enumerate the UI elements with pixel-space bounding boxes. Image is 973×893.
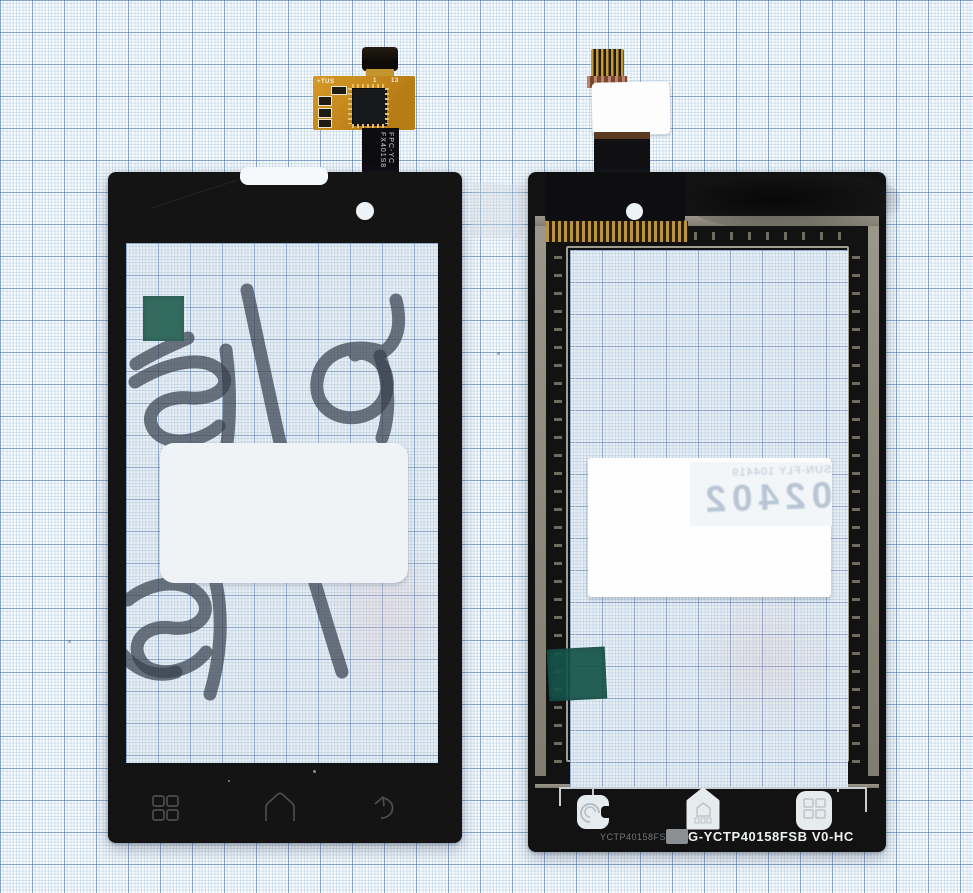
left-digitizer-front	[108, 172, 462, 843]
flex-connector-fingers	[591, 49, 624, 77]
flex-tab	[545, 172, 685, 224]
sensor-frame-left	[535, 216, 546, 776]
flex-ribbon: FPC-YC FX401S8	[362, 128, 399, 174]
paper-speck	[68, 640, 71, 643]
paper-speck	[497, 352, 500, 355]
bezel-scratch	[150, 180, 236, 209]
touch-controller-chip	[352, 88, 387, 126]
alignment-hole	[626, 203, 643, 220]
home-icon	[266, 793, 294, 821]
tape-ghost	[471, 183, 526, 240]
smd-component	[318, 96, 332, 106]
back-icon	[375, 797, 393, 818]
menu-icon	[153, 796, 178, 820]
flex-ribbon	[594, 132, 650, 174]
green-sticker	[143, 296, 184, 341]
pin13-label: 13	[391, 78, 399, 84]
board-connector	[362, 47, 398, 71]
flex-ribbon-text: FPC-YC FX401S8	[378, 132, 394, 168]
product-photo: +TUS 1 13 FPC-YC FX401S8	[0, 0, 973, 893]
smd-component	[318, 119, 332, 128]
right-digitizer-back: SUN-FLY 104419 02402	[528, 172, 886, 852]
silkscreen-mark: +TUS	[317, 79, 335, 85]
chip-pins-top	[352, 84, 385, 88]
part-number-bold: G-YCTP40158FSB V0-HC	[688, 829, 854, 844]
glass-reflection	[690, 580, 840, 740]
sensor-trace	[842, 250, 843, 787]
adhesive-smudge	[690, 174, 900, 229]
gray-blob	[666, 829, 688, 844]
stamp-big-text: 02402	[690, 478, 832, 519]
home-pad	[688, 789, 718, 828]
sticker-overlay: SUN-FLY 104419 02402	[690, 462, 832, 526]
nav-icons	[108, 772, 462, 843]
menu-pad	[796, 791, 832, 830]
speaker-notch	[240, 167, 328, 185]
green-sticker	[547, 647, 608, 702]
sensor-ticks-right	[852, 256, 860, 776]
left-glass-window	[126, 243, 438, 763]
gold-bonding-comb	[546, 221, 688, 242]
sensor-trace	[575, 250, 576, 787]
smd-component	[331, 86, 347, 95]
sensor-frame-right	[868, 216, 879, 776]
chip-pins-right	[385, 88, 389, 124]
white-label-sticker	[160, 443, 408, 583]
mirrored-stamp: SUN-FLY 104419 02402	[690, 464, 832, 519]
smd-component	[318, 108, 332, 118]
flex-white-label	[592, 81, 671, 135]
camera-hole	[356, 202, 374, 220]
back-pad	[577, 795, 612, 829]
chip-pins-left	[348, 88, 352, 124]
